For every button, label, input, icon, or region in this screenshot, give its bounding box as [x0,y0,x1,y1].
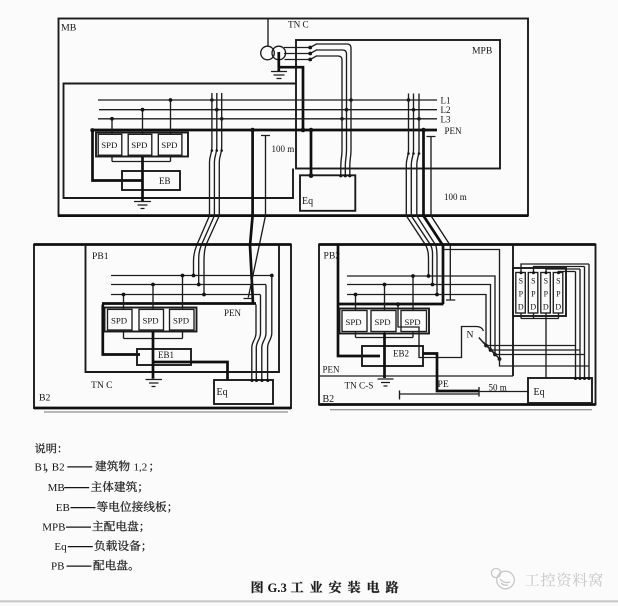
svg-text:S: S [531,277,535,286]
svg-text:MB: MB [61,23,77,34]
svg-text:B2: B2 [39,392,51,403]
svg-text:SPD: SPD [375,317,391,327]
svg-text:TN C: TN C [91,380,113,391]
svg-text:EB1: EB1 [158,350,174,360]
svg-text:D: D [518,303,524,312]
svg-text:PEN: PEN [445,126,463,136]
svg-text:50 m: 50 m [489,382,507,392]
svg-text:1,2: 1,2 [134,461,148,473]
svg-text:B2: B2 [323,394,335,405]
svg-text:L1: L1 [441,96,451,106]
svg-text:P: P [519,290,524,299]
svg-text:SPD: SPD [111,315,127,325]
svg-text:TN C-S: TN C-S [345,380,374,390]
svg-text:G.3: G.3 [268,581,287,595]
svg-text:D: D [555,303,561,312]
svg-text:B2: B2 [52,461,65,473]
svg-text:Eq: Eq [54,541,67,553]
svg-text:Eq: Eq [534,387,545,398]
svg-text:TN C: TN C [288,19,309,29]
svg-text:SPD: SPD [101,140,117,150]
svg-text:SPD: SPD [143,315,159,325]
svg-text:SPD: SPD [173,315,189,325]
svg-text:EB: EB [159,176,171,186]
svg-text:SPD: SPD [346,317,362,327]
svg-text:S: S [556,277,560,286]
svg-text:D: D [543,303,549,312]
svg-text:B1: B1 [35,461,48,473]
svg-text:P: P [544,290,549,299]
svg-text:PE: PE [438,379,449,390]
svg-text:EB2: EB2 [393,348,409,358]
svg-text:S: S [519,277,523,286]
svg-text:MPB: MPB [472,46,492,57]
svg-text:100 m: 100 m [272,144,295,154]
svg-text:100 m: 100 m [444,192,467,202]
svg-text:PEN: PEN [224,308,242,318]
svg-text:N: N [467,330,474,341]
svg-text:MB: MB [48,482,65,494]
svg-text:P: P [531,290,536,299]
svg-text:SPD: SPD [131,140,147,150]
svg-text:P: P [556,290,561,299]
svg-text:EB: EB [56,502,70,514]
svg-text:PB1: PB1 [92,251,109,262]
svg-text:L3: L3 [441,115,451,125]
svg-text:SPD: SPD [405,317,421,327]
svg-text:S: S [544,277,548,286]
svg-text:D: D [530,303,536,312]
svg-text:PEN: PEN [323,364,341,374]
svg-text:PB: PB [51,561,64,573]
svg-text:SPD: SPD [161,140,177,150]
svg-text:Eq: Eq [302,196,313,207]
svg-text:MPB: MPB [42,522,65,534]
svg-text:Eq: Eq [217,387,228,398]
